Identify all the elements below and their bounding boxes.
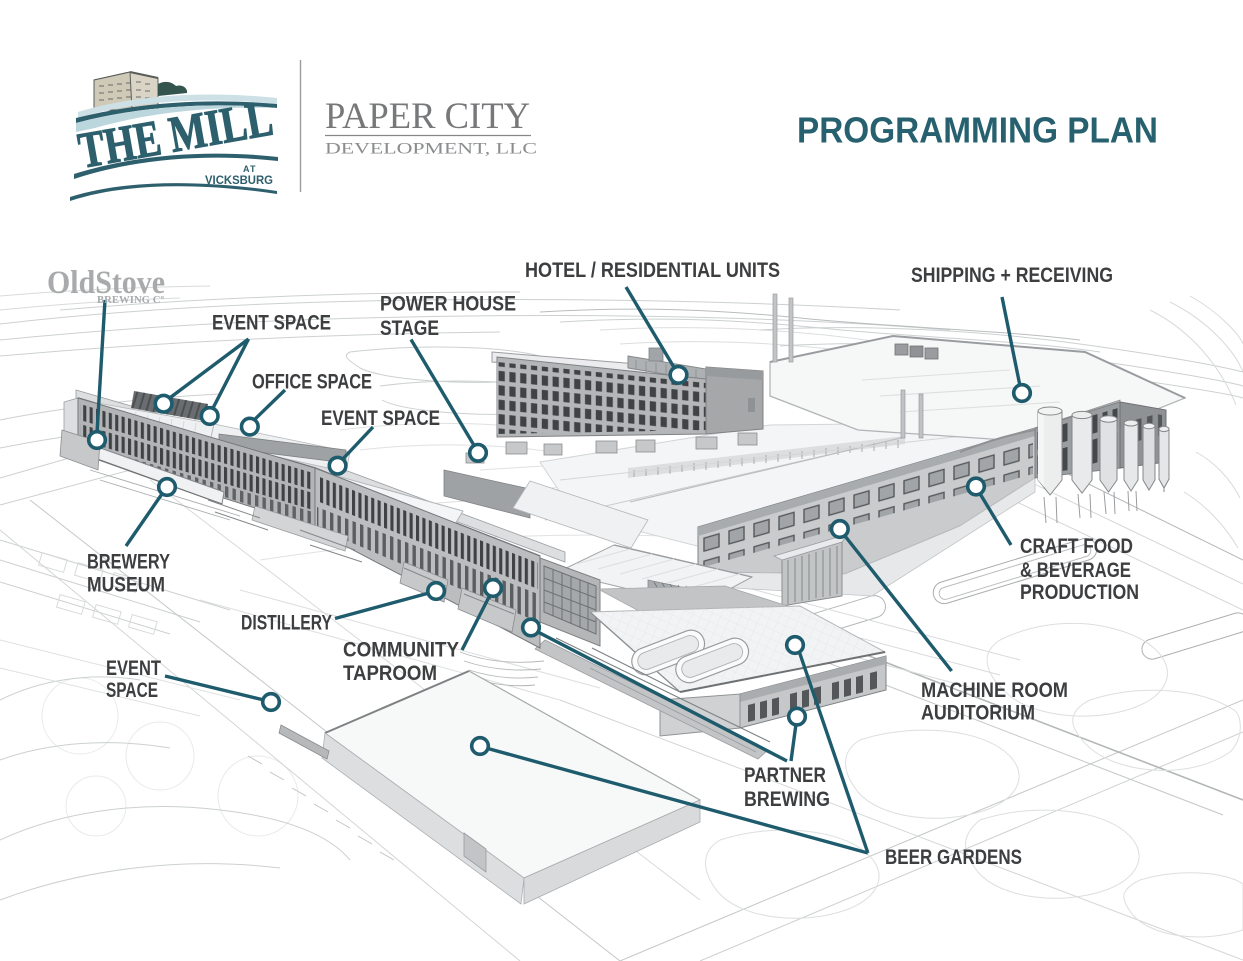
svg-text:CRAFT FOOD: CRAFT FOOD bbox=[1020, 535, 1133, 558]
svg-text:VICKSBURG: VICKSBURG bbox=[205, 175, 273, 187]
svg-text:EVENT SPACE: EVENT SPACE bbox=[321, 407, 440, 430]
svg-text:EVENT SPACE: EVENT SPACE bbox=[212, 312, 331, 335]
svg-text:STAGE: STAGE bbox=[380, 317, 439, 340]
svg-text:& BEVERAGE: & BEVERAGE bbox=[1020, 559, 1131, 582]
svg-text:SPACE: SPACE bbox=[106, 679, 158, 702]
svg-text:MACHINE ROOM: MACHINE ROOM bbox=[921, 679, 1068, 702]
svg-text:PAPER CITY: PAPER CITY bbox=[325, 96, 530, 137]
svg-text:DEVELOPMENT, LLC: DEVELOPMENT, LLC bbox=[325, 141, 537, 158]
svg-text:COMMUNITY: COMMUNITY bbox=[343, 639, 459, 662]
svg-text:OFFICE SPACE: OFFICE SPACE bbox=[252, 371, 372, 394]
svg-text:POWER HOUSE: POWER HOUSE bbox=[380, 293, 516, 316]
svg-text:TAPROOM: TAPROOM bbox=[343, 662, 437, 685]
svg-text:AT: AT bbox=[243, 164, 257, 174]
svg-text:PROGRAMMING PLAN: PROGRAMMING PLAN bbox=[797, 110, 1158, 151]
svg-text:DISTILLERY: DISTILLERY bbox=[241, 612, 332, 635]
svg-text:PARTNER: PARTNER bbox=[744, 764, 826, 787]
svg-text:EVENT: EVENT bbox=[106, 657, 161, 680]
svg-text:AUDITORIUM: AUDITORIUM bbox=[921, 702, 1035, 725]
svg-text:BREWING Cº: BREWING Cº bbox=[97, 295, 165, 306]
svg-text:PRODUCTION: PRODUCTION bbox=[1020, 581, 1139, 604]
svg-text:BREWERY: BREWERY bbox=[87, 551, 170, 574]
svg-text:HOTEL / RESIDENTIAL UNITS: HOTEL / RESIDENTIAL UNITS bbox=[525, 259, 780, 282]
svg-text:BEER GARDENS: BEER GARDENS bbox=[885, 846, 1022, 869]
svg-text:BREWING: BREWING bbox=[744, 788, 830, 811]
svg-text:SHIPPING + RECEIVING: SHIPPING + RECEIVING bbox=[911, 264, 1113, 287]
svg-text:MUSEUM: MUSEUM bbox=[87, 574, 165, 597]
